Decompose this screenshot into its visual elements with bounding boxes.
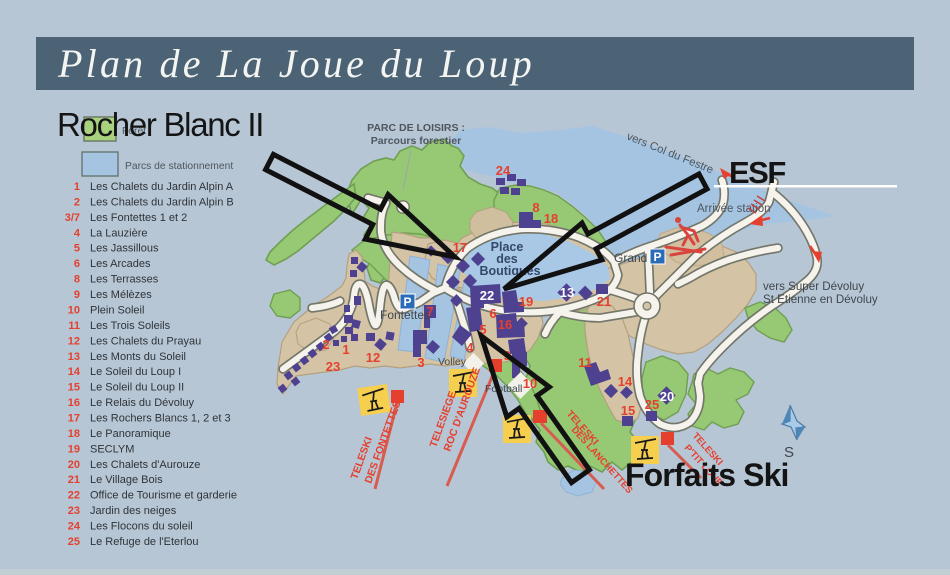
svg-text:Le Soleil du Loup I: Le Soleil du Loup I — [90, 366, 181, 378]
svg-text:22: 22 — [68, 490, 80, 502]
svg-text:Office de Tourisme et garderie: Office de Tourisme et garderie — [90, 490, 237, 502]
svg-text:13: 13 — [68, 351, 80, 363]
svg-text:16: 16 — [68, 397, 80, 409]
svg-text:PARC DE LOISIRS :: PARC DE LOISIRS : — [367, 122, 465, 134]
svg-text:15: 15 — [621, 403, 635, 418]
svg-text:Le Refuge de l'Eterlou: Le Refuge de l'Eterlou — [90, 536, 199, 548]
svg-text:Fontettes: Fontettes — [380, 308, 430, 322]
svg-text:6: 6 — [74, 258, 80, 270]
svg-text:1: 1 — [342, 342, 349, 357]
svg-text:Parcs de stationnement: Parcs de stationnement — [125, 161, 233, 172]
svg-text:20: 20 — [660, 389, 674, 404]
svg-text:Le Soleil du Loup II: Le Soleil du Loup II — [90, 382, 184, 394]
svg-text:Les Mélèzes: Les Mélèzes — [90, 289, 152, 301]
svg-text:20: 20 — [68, 459, 80, 471]
svg-text:Les Chalets du Jardin Alpin A: Les Chalets du Jardin Alpin A — [90, 181, 234, 193]
svg-text:21: 21 — [597, 294, 611, 309]
svg-text:8: 8 — [74, 274, 80, 286]
svg-text:3: 3 — [417, 355, 424, 370]
svg-text:25: 25 — [68, 536, 80, 548]
svg-text:ESF: ESF — [729, 155, 785, 190]
svg-text:Les Fontettes 1 et 2: Les Fontettes 1 et 2 — [90, 212, 187, 224]
svg-text:23: 23 — [68, 505, 80, 517]
svg-text:23: 23 — [326, 359, 340, 374]
svg-text:18: 18 — [544, 211, 558, 226]
svg-text:11: 11 — [578, 355, 592, 370]
svg-text:24: 24 — [68, 521, 81, 533]
svg-text:17: 17 — [453, 240, 467, 255]
svg-text:Le Village Bois: Le Village Bois — [90, 474, 163, 486]
svg-text:24: 24 — [496, 163, 511, 178]
svg-text:Rocher Blanc II: Rocher Blanc II — [57, 106, 263, 143]
svg-text:9: 9 — [74, 289, 80, 301]
svg-text:22: 22 — [480, 288, 494, 303]
svg-text:5: 5 — [74, 243, 80, 255]
svg-text:25: 25 — [645, 397, 659, 412]
svg-text:Arrivée station: Arrivée station — [697, 203, 771, 215]
svg-text:Les Chalets du Prayau: Les Chalets du Prayau — [90, 335, 201, 347]
svg-text:19: 19 — [519, 294, 533, 309]
svg-text:1: 1 — [74, 181, 80, 193]
svg-text:21: 21 — [68, 474, 80, 486]
svg-text:3/7: 3/7 — [65, 212, 80, 224]
svg-text:Volley: Volley — [438, 356, 467, 368]
svg-text:2: 2 — [74, 196, 80, 208]
svg-text:SECLYM: SECLYM — [90, 443, 134, 455]
svg-text:Grand: Grand — [614, 251, 647, 265]
svg-text:12: 12 — [366, 350, 380, 365]
svg-text:Football: Football — [485, 383, 522, 395]
svg-text:Plan de La Joue du Loup: Plan de La Joue du Loup — [57, 41, 535, 86]
svg-text:Forfaits Ski: Forfaits Ski — [625, 457, 788, 493]
svg-text:Les Jassillous: Les Jassillous — [90, 243, 159, 255]
svg-text:13: 13 — [560, 285, 574, 300]
svg-text:11: 11 — [68, 320, 80, 332]
svg-text:Les Chalets d'Aurouze: Les Chalets d'Aurouze — [90, 459, 200, 471]
svg-text:Les Flocons du soleil: Les Flocons du soleil — [90, 521, 193, 533]
svg-text:La Lauzière: La Lauzière — [90, 227, 148, 239]
svg-text:14: 14 — [68, 366, 81, 378]
svg-text:8: 8 — [532, 200, 539, 215]
svg-text:Le Panoramique: Le Panoramique — [90, 428, 171, 440]
svg-text:Les Trois Soleils: Les Trois Soleils — [90, 320, 171, 332]
svg-text:4: 4 — [74, 227, 81, 239]
svg-text:16: 16 — [498, 317, 512, 332]
svg-text:Les Terrasses: Les Terrasses — [90, 274, 159, 286]
svg-text:18: 18 — [68, 428, 80, 440]
svg-text:10: 10 — [68, 305, 80, 317]
svg-text:St Etienne en Dévoluy: St Etienne en Dévoluy — [763, 293, 878, 306]
svg-text:P: P — [403, 295, 411, 309]
svg-text:Les Chalets du Jardin Alpin B: Les Chalets du Jardin Alpin B — [90, 196, 234, 208]
svg-text:14: 14 — [618, 374, 633, 389]
svg-text:Jardin des neiges: Jardin des neiges — [90, 505, 177, 517]
svg-text:Le Relais du Dévoluy: Le Relais du Dévoluy — [90, 397, 194, 409]
svg-text:6: 6 — [489, 306, 496, 321]
svg-text:Les Rochers Blancs 1, 2 et 3: Les Rochers Blancs 1, 2 et 3 — [90, 413, 231, 425]
svg-text:Plein Soleil: Plein Soleil — [90, 305, 144, 317]
svg-text:Les Arcades: Les Arcades — [90, 258, 151, 270]
svg-text:Les Monts du Soleil: Les Monts du Soleil — [90, 351, 186, 363]
svg-text:4: 4 — [466, 340, 474, 355]
svg-text:19: 19 — [68, 443, 80, 455]
svg-text:15: 15 — [68, 382, 80, 394]
svg-text:2: 2 — [322, 337, 329, 352]
svg-text:vers Super Dévoluy: vers Super Dévoluy — [763, 280, 864, 293]
svg-text:Parcours forestier: Parcours forestier — [371, 135, 461, 147]
svg-text:17: 17 — [68, 413, 80, 425]
svg-text:P: P — [653, 250, 661, 264]
svg-text:12: 12 — [68, 335, 80, 347]
